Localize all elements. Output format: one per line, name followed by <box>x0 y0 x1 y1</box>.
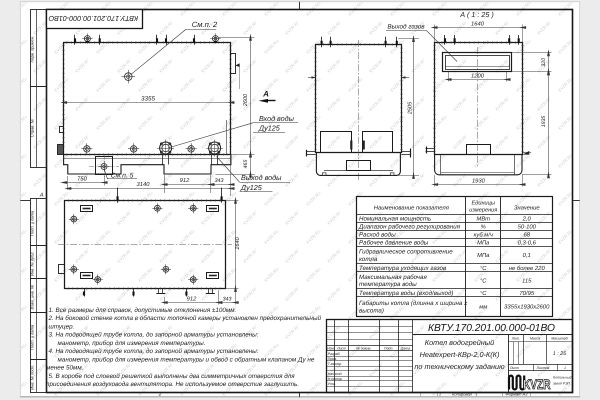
svg-text:№ докум.: № докум. <box>356 347 371 351</box>
svg-text:3355: 3355 <box>141 96 156 103</box>
svg-text:320: 320 <box>541 58 547 67</box>
svg-text:Heatexpert-КВр-2,0-К(К): Heatexpert-КВр-2,0-К(К) <box>420 350 500 359</box>
svg-text:Наименование показателя: Наименование показателя <box>374 205 450 212</box>
svg-text:куб.м/ч: куб.м/ч <box>474 231 493 238</box>
svg-text:465: 465 <box>243 160 249 169</box>
svg-text:котла: котла <box>359 256 378 263</box>
svg-text:°С: °С <box>480 265 487 272</box>
svg-text:манометр, прибор для измерения: манометр, прибор для измерения температу… <box>58 340 206 347</box>
svg-text:1200: 1200 <box>471 72 485 79</box>
svg-text:Инв. № подл.: Инв. № подл. <box>30 365 35 390</box>
svg-text:Нач.отд.: Нач.отд. <box>328 372 343 376</box>
svg-text:завод РЭП: завод РЭП <box>552 382 570 386</box>
svg-text:Рабочее давление воды: Рабочее давление воды <box>359 239 429 246</box>
svg-text:750: 750 <box>77 176 87 183</box>
svg-text:1: 1 <box>564 366 566 370</box>
svg-text:температура воды: температура воды <box>359 281 417 288</box>
svg-text:2505: 2505 <box>407 101 413 115</box>
svg-text:°С: °С <box>480 277 487 284</box>
svg-text:Справ. №: Справ. № <box>30 118 35 137</box>
svg-text:манометр, прибор для измерения: манометр, прибор для измерения температу… <box>58 356 315 363</box>
svg-text:Подп.: Подп. <box>384 347 393 351</box>
svg-text:измерения: измерения <box>469 207 497 213</box>
svg-text:Лист: Лист <box>336 347 346 351</box>
svg-text:70/95: 70/95 <box>519 290 534 297</box>
svg-text:1. Все размеры для справок, до: 1. Все размеры для справок, допустимые о… <box>49 307 237 314</box>
svg-text:Котел водогрейный: Котел водогрейный <box>425 338 494 347</box>
svg-text:3355х1930х2600: 3355х1930х2600 <box>504 304 550 311</box>
svg-text:штуцер.: штуцер. <box>49 323 75 330</box>
svg-text:2600: 2600 <box>243 93 249 107</box>
svg-text:Диапазон рабочего регулировани: Диапазон рабочего регулирования <box>358 223 461 230</box>
svg-text:KVZR: KVZR <box>523 377 551 392</box>
svg-text:343: 343 <box>223 297 232 303</box>
svg-text:912: 912 <box>187 296 197 303</box>
svg-text:Масса: Масса <box>530 336 540 340</box>
svg-text:Подп. и дата: Подп. и дата <box>30 324 35 350</box>
svg-text:115: 115 <box>522 277 532 284</box>
svg-text:А ( 1 : 25 ): А ( 1 : 25 ) <box>459 10 494 19</box>
svg-text:Масштаб: Масштаб <box>551 336 568 340</box>
svg-text:2: 2 <box>158 392 162 397</box>
svg-text:Габариты котла (длинна х ширин: Габариты котла (длинна х ширина х <box>359 300 468 307</box>
svg-text:менее 50мм.: менее 50мм. <box>46 365 83 372</box>
svg-text:МПа: МПа <box>477 253 490 259</box>
svg-text:Максимальная рабочая: Максимальная рабочая <box>359 274 427 281</box>
svg-text:2. На боковой стенке котла в о: 2. На боковой стенке котла в области топ… <box>48 315 322 322</box>
svg-text:0,1: 0,1 <box>523 252 531 259</box>
svg-text:4. На подводящей трубе котла,: 4. На подводящей трубе котла, до запорно… <box>49 348 259 355</box>
svg-text:%: % <box>481 223 486 230</box>
svg-text:Ду125: Ду125 <box>240 183 263 192</box>
svg-text:Т.контр.: Т.контр. <box>328 362 342 366</box>
svg-text:50-100: 50-100 <box>518 223 537 230</box>
svg-text:1640: 1640 <box>471 20 485 27</box>
svg-text:Единицы: Единицы <box>472 199 495 206</box>
svg-text:Выход воды: Выход воды <box>241 173 282 182</box>
svg-text:68: 68 <box>523 231 530 238</box>
svg-text:Подп. и дата: Подп. и дата <box>30 210 35 236</box>
svg-text:°С: °С <box>480 290 487 297</box>
svg-text:1640: 1640 <box>235 236 241 249</box>
svg-text:Инв. № дубл.: Инв. № дубл. <box>30 251 35 276</box>
svg-text:МПа: МПа <box>477 240 490 246</box>
svg-text:Н.контр.: Н.контр. <box>328 377 343 381</box>
svg-text:Значение: Значение <box>514 205 541 212</box>
svg-text:А: А <box>39 192 44 198</box>
svg-text:присоединения воздуховода вент: присоединения воздуховода вентилятора. Н… <box>46 381 299 388</box>
svg-text:Пров.: Пров. <box>328 357 337 361</box>
svg-text:1 : 25: 1 : 25 <box>553 351 566 357</box>
svg-text:1930: 1930 <box>472 177 486 184</box>
svg-text:Разраб.: Разраб. <box>328 352 341 356</box>
svg-text:Котельный: Котельный <box>553 376 572 380</box>
svg-text:Дата: Дата <box>400 347 410 351</box>
svg-text:Вход воды: Вход воды <box>259 114 295 123</box>
svg-text:См.п. 2: См.п. 2 <box>192 20 218 29</box>
svg-text:Выход газов: Выход газов <box>387 24 425 31</box>
svg-text:не более 220: не более 220 <box>509 265 546 272</box>
svg-text:Расход воды: Расход воды <box>359 231 396 238</box>
svg-text:Перв. примен.: Перв. примен. <box>30 36 35 63</box>
svg-text:высота): высота) <box>359 307 384 314</box>
svg-text:по техническому заданию: по техническому заданию <box>414 362 505 371</box>
svg-text:Лист: Лист <box>509 366 519 370</box>
svg-text:2,0: 2,0 <box>522 215 532 222</box>
svg-text:0,3-0,6: 0,3-0,6 <box>518 239 537 246</box>
svg-text:А: А <box>262 90 269 99</box>
svg-text:Ду125: Ду125 <box>258 124 281 133</box>
svg-text:МВт: МВт <box>476 216 490 222</box>
svg-text:Гидравлическое сопротивление: Гидравлическое сопротивление <box>359 249 453 256</box>
svg-text:Изм.: Изм. <box>327 347 334 351</box>
svg-text:Взам. инв. №: Взам. инв. № <box>30 284 35 309</box>
svg-text:3140: 3140 <box>137 181 151 188</box>
svg-text:5. В коробе под слоевой решетк: 5. В коробе под слоевой решеткой выполне… <box>49 373 296 380</box>
svg-text:1935: 1935 <box>541 116 547 128</box>
svg-text:Температура воды (вход/выход): Температура воды (вход/выход) <box>359 290 453 297</box>
svg-text:912: 912 <box>180 177 190 184</box>
svg-text:Лит.: Лит. <box>511 336 520 340</box>
svg-text:343: 343 <box>215 178 224 184</box>
svg-text:КВТУ.170.201.00.000-01ВО: КВТУ.170.201.00.000-01ВО <box>48 14 138 23</box>
svg-text:Температура уходящих газов: Температура уходящих газов <box>359 265 447 272</box>
svg-text:Утв.: Утв. <box>328 382 336 386</box>
svg-text:КВТУ.170.201.00.000-01ВО: КВТУ.170.201.00.000-01ВО <box>428 323 555 334</box>
svg-text:3. На подводящей трубе котла,: 3. На подводящей трубе котла, до запорно… <box>49 332 259 339</box>
svg-text:мм: мм <box>479 305 487 311</box>
svg-text:Номинальная мощность: Номинальная мощность <box>359 215 431 222</box>
svg-text:Листов: Листов <box>536 366 550 370</box>
